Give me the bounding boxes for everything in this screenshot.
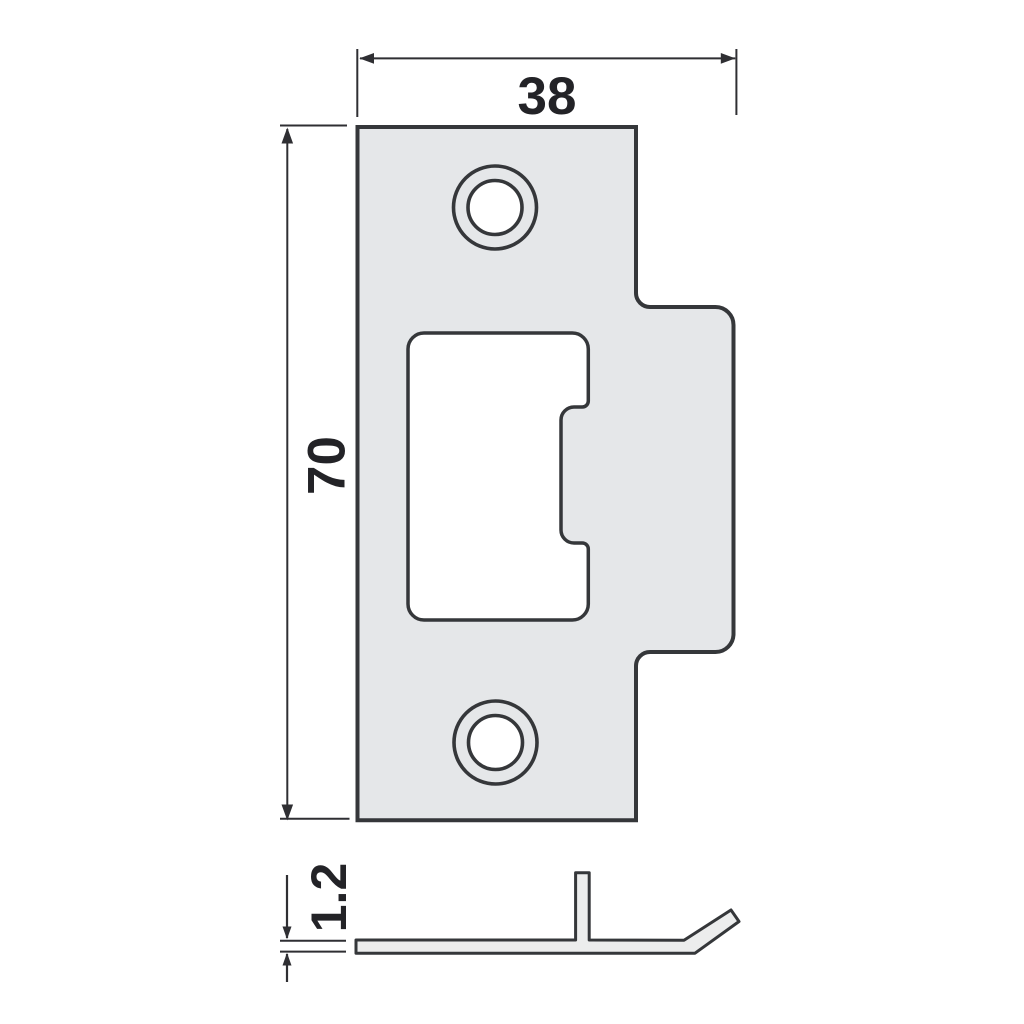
svg-text:1.2: 1.2 bbox=[301, 863, 357, 933]
svg-text:38: 38 bbox=[518, 67, 577, 126]
svg-text:70: 70 bbox=[298, 436, 357, 495]
